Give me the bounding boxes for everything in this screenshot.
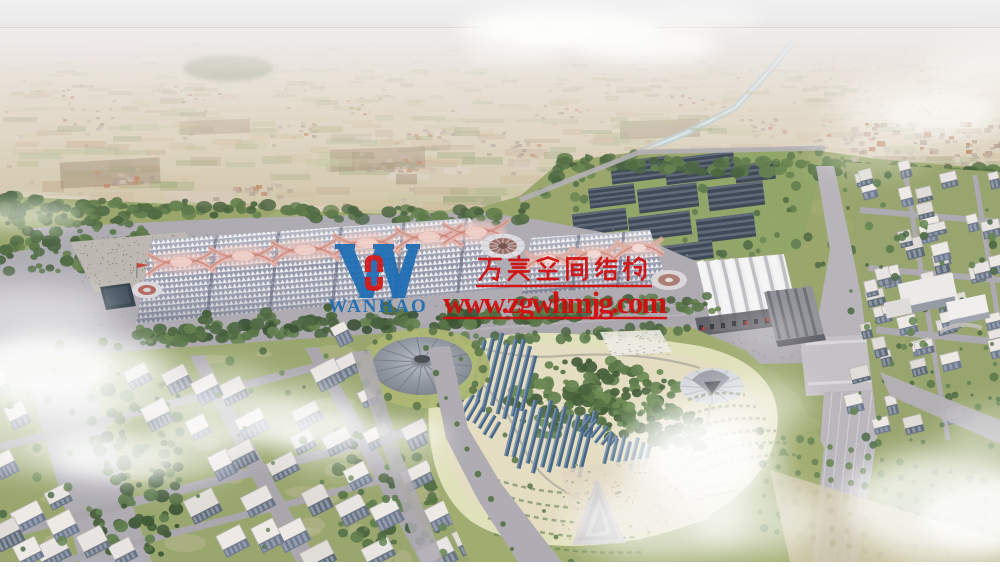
svg-text:WANHAO: WANHAO bbox=[328, 296, 428, 317]
svg-text:www.zgwhmjg.com: www.zgwhmjg.com bbox=[443, 285, 667, 320]
